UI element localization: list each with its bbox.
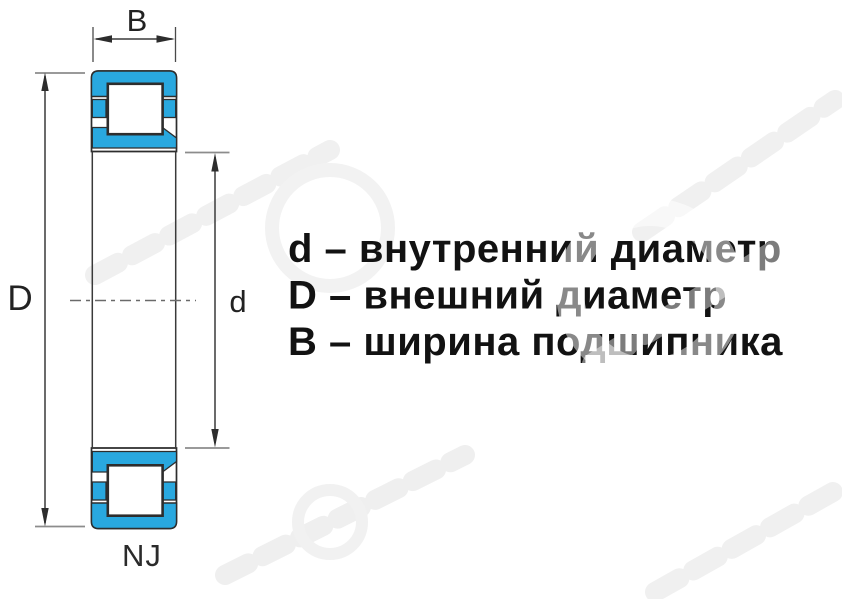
dimension-D: D bbox=[7, 73, 85, 527]
dimension-B: B bbox=[93, 3, 176, 62]
bearing-bottom-half bbox=[92, 448, 177, 529]
bearing-cross-section bbox=[70, 71, 196, 529]
right-rib bbox=[163, 100, 176, 118]
arrowhead bbox=[41, 73, 48, 92]
dim-label-D: D bbox=[7, 279, 32, 318]
diagram-svg: B D d NJ d – внутренний диаметр D – внеш… bbox=[0, 0, 842, 599]
arrowhead bbox=[211, 153, 218, 172]
arrowhead bbox=[41, 508, 48, 527]
bearing-type-label: NJ bbox=[122, 538, 162, 573]
bearing-top-half bbox=[92, 71, 177, 152]
arrowhead bbox=[157, 35, 176, 42]
dim-label-d: d bbox=[229, 284, 246, 319]
arrowhead bbox=[211, 429, 218, 448]
roller bbox=[108, 84, 163, 134]
bearing-dimension-diagram: B D d NJ d – внутренний диаметр D – внеш… bbox=[0, 0, 842, 599]
left-rib bbox=[92, 100, 106, 118]
dim-label-B: B bbox=[127, 3, 148, 38]
arrowhead bbox=[94, 35, 113, 42]
